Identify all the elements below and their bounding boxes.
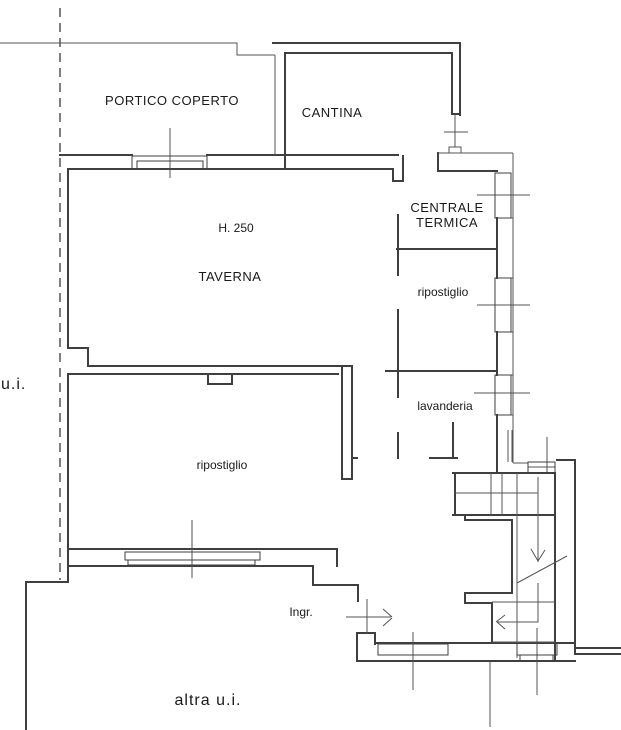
label-centrale-termica-line1: CENTRALE <box>410 200 483 215</box>
floor-plan: PORTICO COPERTO CANTINA CENTRALE TERMICA… <box>0 0 621 730</box>
label-cantina: CANTINA <box>302 105 363 120</box>
floor-plan-svg: PORTICO COPERTO CANTINA CENTRALE TERMICA… <box>0 0 621 730</box>
label-taverna-height: H. 250 <box>218 221 254 235</box>
label-portico: PORTICO COPERTO <box>105 93 239 108</box>
stair-walk-line <box>496 477 567 629</box>
label-centrale-termica-line2: TERMICA <box>416 215 478 230</box>
entrance-door-arrow <box>346 599 392 633</box>
thin-lines <box>0 43 555 727</box>
lavanderia-window <box>495 375 511 415</box>
label-ripostiglio-right: ripostiglio <box>418 285 469 299</box>
walls <box>26 43 621 730</box>
label-altra-ui: altra u.i. <box>175 692 242 709</box>
label-taverna: TAVERNA <box>199 269 262 284</box>
label-lavanderia: lavanderia <box>417 399 473 413</box>
label-ingresso: Ingr. <box>289 605 312 619</box>
label-ripostiglio-left: ripostiglio <box>197 458 248 472</box>
label-ui: u.i. <box>1 376 26 393</box>
labels: PORTICO COPERTO CANTINA CENTRALE TERMICA… <box>1 93 484 709</box>
